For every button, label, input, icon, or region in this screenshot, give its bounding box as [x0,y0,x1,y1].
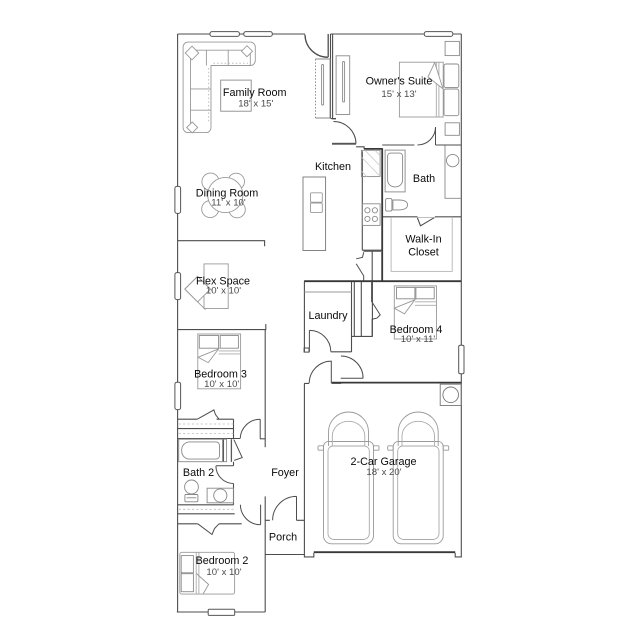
svg-text:Closet: Closet [408,247,439,259]
svg-text:15' x 13': 15' x 13' [381,89,416,100]
svg-text:18' x 20': 18' x 20' [366,467,401,478]
svg-text:Owner's Suite: Owner's Suite [366,76,433,88]
svg-text:10' x 10': 10' x 10' [206,286,241,297]
svg-text:Walk-In: Walk-In [405,234,441,246]
svg-text:2-Car Garage: 2-Car Garage [350,456,416,468]
svg-text:10' x 10': 10' x 10' [204,379,239,390]
svg-text:Bath: Bath [413,173,435,185]
svg-text:Kitchen: Kitchen [315,161,351,173]
svg-text:Bath 2: Bath 2 [183,467,214,479]
svg-text:18' x 15': 18' x 15' [238,99,273,110]
svg-text:Family Room: Family Room [223,87,287,99]
svg-text:11' x 10': 11' x 10' [211,198,246,209]
svg-text:Porch: Porch [269,532,297,544]
svg-text:Laundry: Laundry [308,310,348,322]
svg-text:10' x 11': 10' x 11' [401,334,436,345]
svg-text:Foyer: Foyer [271,467,299,479]
svg-text:Bedroom 2: Bedroom 2 [196,555,249,567]
svg-text:10' x 10': 10' x 10' [206,567,241,578]
